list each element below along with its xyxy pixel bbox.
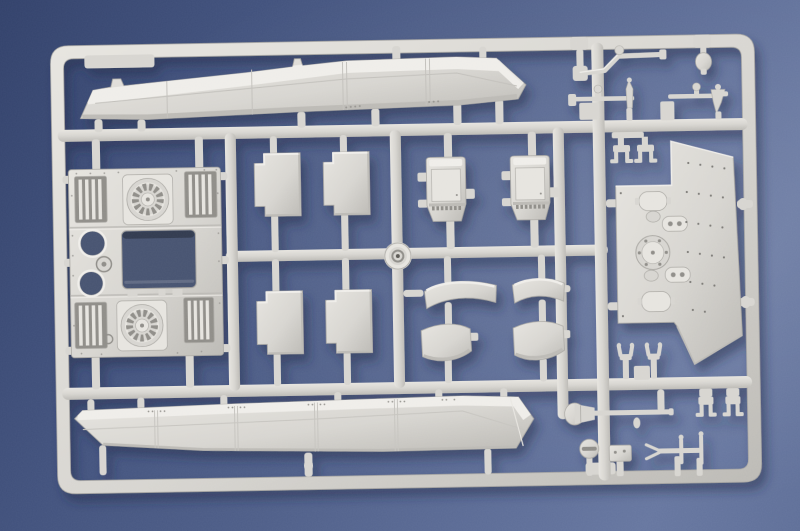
photo-stage xyxy=(0,0,800,531)
sprue-photo xyxy=(0,0,800,531)
grain-overlay xyxy=(0,0,800,531)
